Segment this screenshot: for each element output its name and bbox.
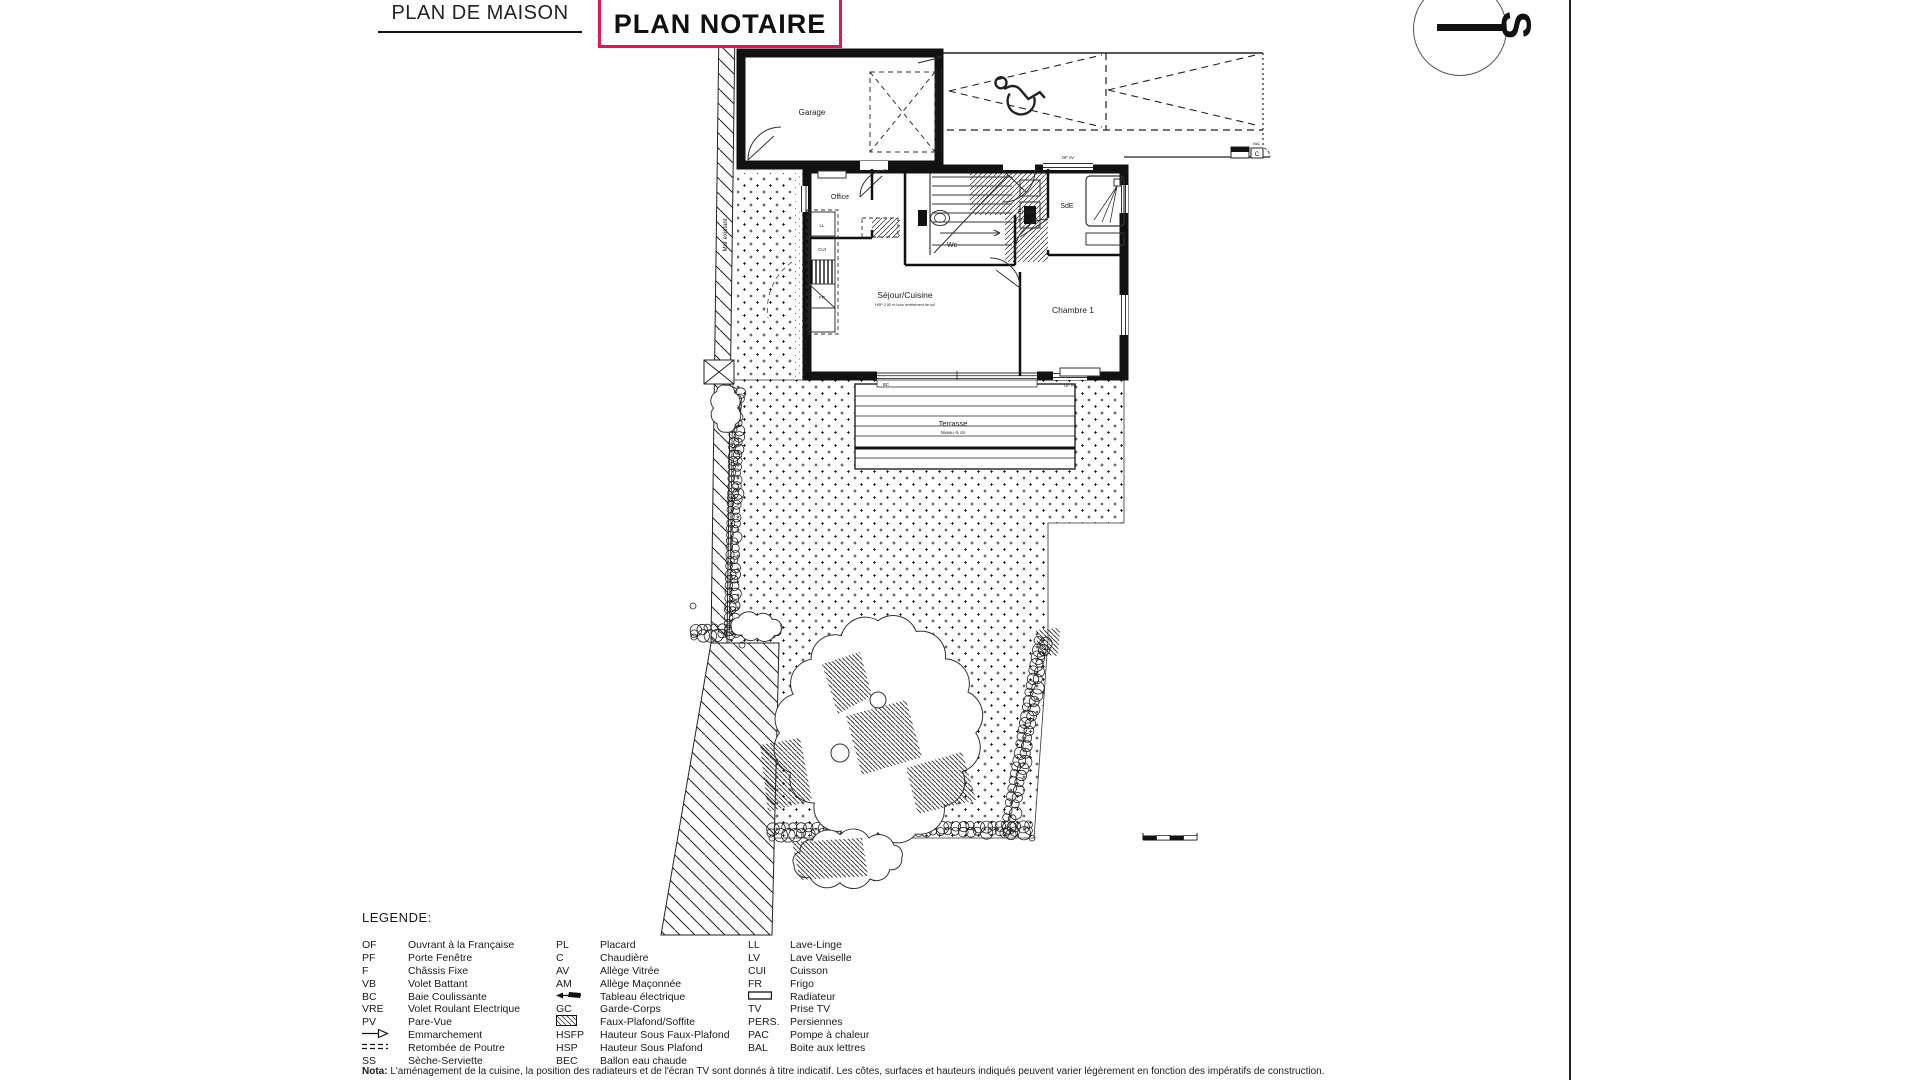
garage: Garage [741, 53, 942, 165]
legend-abbr: PERS. [748, 1016, 790, 1028]
legend-row: AVAllège Vitrée [556, 965, 730, 978]
legend-abbr: OF [362, 939, 408, 951]
legend-abbr: F [362, 965, 408, 977]
legend-abbr: BAL [748, 1042, 790, 1054]
legend-label: Placard [600, 939, 636, 951]
retombee-icon [362, 1042, 408, 1054]
legend-abbr: LL [748, 939, 790, 951]
legend-abbr: LV [748, 952, 790, 964]
scale-bar [1143, 833, 1197, 840]
legend-label: Chaudière [600, 952, 648, 964]
legend-label: Volet Battant [408, 978, 468, 990]
legend-row: LLLave-Linge [748, 939, 869, 952]
hedge-shrub [697, 630, 709, 642]
mailbox: C BAL [1251, 141, 1270, 158]
legend-label: Lave-Linge [790, 939, 842, 951]
mailbox-letter: C [1255, 151, 1260, 158]
legend-column-3: LLLave-LingeLVLave VaiselleCUICuissonFRF… [748, 939, 869, 1054]
note-text: L'aménagement de la cuisine, la position… [388, 1066, 1325, 1077]
legend-row: FChâssis Fixe [362, 965, 520, 978]
legend-label: Frigo [790, 978, 814, 990]
chambre-window-label: OF AV [1064, 383, 1076, 388]
legend-row: BALBoite aux lettres [748, 1041, 869, 1054]
legend-label: Boite aux lettres [790, 1042, 865, 1054]
legend-abbr: GC [556, 1003, 600, 1015]
legend-label: Persiennes [790, 1016, 843, 1028]
terrace: Terrasse Niveau -5 cm [855, 384, 1075, 469]
radiateur-icon [748, 991, 790, 1003]
legend-label: Allège Maçonnée [600, 978, 681, 990]
legend-row: Retombée de Poutre [362, 1041, 520, 1054]
legend-row: Tableau électrique [556, 990, 730, 1003]
plan-sheet: Mur existant Terrasse Niveau -5 cm [0, 0, 1920, 1080]
legend-abbr: TV [748, 1003, 790, 1015]
office-label: Office [831, 194, 849, 201]
wc-label: Wc [947, 242, 958, 249]
legend-label: Allège Vitrée [600, 965, 659, 977]
legend-row: AMAllège Maçonnée [556, 977, 730, 990]
legend-abbr: PV [362, 1016, 408, 1028]
legend: LEGENDE: OFOuvrant à la FrançaisePFPorte… [362, 910, 432, 939]
sde-label: SdE [1060, 203, 1074, 210]
entree-sub-label: HSFP 2.20 m [1016, 218, 1038, 222]
sejour-label: Séjour/Cuisine [877, 290, 933, 300]
legend-abbr: CUI [748, 965, 790, 977]
bottom-note: Nota: L'aménagement de la cuisine, la po… [362, 1066, 1552, 1077]
legend-column-1: OFOuvrant à la FrançaisePFPorte FenêtreF… [362, 939, 520, 1067]
legend-label: Ballon eau chaude [600, 1055, 687, 1067]
legend-label: Tableau électrique [600, 991, 685, 1003]
bay-door-label: BC [883, 382, 890, 387]
legend-label: Baie Coulissante [408, 991, 487, 1003]
legend-label: Porte Fenêtre [408, 952, 472, 964]
sheet-border-line [1569, 0, 1571, 1080]
legend-label: Volet Roulant Electrique [408, 1003, 520, 1015]
legend-abbr: SS [362, 1055, 408, 1067]
legend-row: VBVolet Battant [362, 977, 520, 990]
legend-label: Prise TV [790, 1003, 830, 1015]
legend-row: FRFrigo [748, 977, 869, 990]
legend-abbr: HSP [556, 1042, 600, 1054]
legend-abbr: BEC [556, 1055, 600, 1067]
legend-label: Châssis Fixe [408, 965, 468, 977]
existing-wall-label: Mur existant [723, 218, 729, 251]
notary-stamp-box: PLAN NOTAIRE [598, 0, 842, 48]
terrace-sub-label: Niveau -5 cm [941, 430, 966, 435]
legend-label: Emmarchement [408, 1029, 482, 1041]
legend-row: GCGarde-Corps [556, 1003, 730, 1016]
garage-label: Garage [799, 108, 826, 117]
legend-label: Lave Vaiselle [790, 952, 852, 964]
legend-abbr: PF [362, 952, 408, 964]
legend-column-2: PLPlacardCChaudièreAVAllège VitréeAMAllè… [556, 939, 730, 1067]
legend-abbr: PAC [748, 1029, 790, 1041]
legend-label: Garde-Corps [600, 1003, 661, 1015]
sejour-sub-label: HSP 2.50 m hors revêtement de sol [875, 303, 935, 307]
legend-abbr: C [556, 952, 600, 964]
legend-row: OFOuvrant à la Française [362, 939, 520, 952]
legend-label: Sèche-Serviette [408, 1055, 483, 1067]
legend-title: LEGENDE: [362, 910, 432, 925]
legend-row: Faux-Plafond/Soffite [556, 1016, 730, 1029]
emmarchement-icon [362, 1028, 408, 1042]
legend-row: PLPlacard [556, 939, 730, 952]
floor-plan-drawing: Mur existant Terrasse Niveau -5 cm [0, 0, 1920, 1080]
legend-row: PACPompe à chaleur [748, 1029, 869, 1042]
legend-row: PERS.Persiennes [748, 1016, 869, 1029]
parking-spots: C BAL [943, 53, 1270, 158]
kitchen-ll-label: LL [819, 223, 825, 228]
legend-row: CChaudière [556, 952, 730, 965]
compass-south-letter: S [1495, 11, 1537, 39]
legend-label: Radiateur [790, 991, 836, 1003]
kitchen-fr-label: FR [819, 295, 826, 300]
legend-abbr: VRE [362, 1003, 408, 1015]
legend-abbr: BC [362, 991, 408, 1003]
tableau-icon [556, 991, 600, 1003]
mailbox-label: BAL [1253, 141, 1261, 146]
legend-label: Pompe à chaleur [790, 1029, 869, 1041]
house: OF AV BC OF AV [799, 155, 1128, 388]
notary-stamp-label: PLAN NOTAIRE [614, 11, 827, 45]
legend-row: PFPorte Fenêtre [362, 952, 520, 965]
legend-label: Cuisson [790, 965, 828, 977]
legend-row: TVPrise TV [748, 1003, 869, 1016]
legend-row: CUICuisson [748, 965, 869, 978]
legend-label: Faux-Plafond/Soffite [600, 1016, 695, 1028]
legend-row: HSPHauteur Sous Plafond [556, 1041, 730, 1054]
north-window-label: OF AV [1062, 155, 1074, 160]
legend-row: BCBaie Coulissante [362, 990, 520, 1003]
legend-row: PVPare-Vue [362, 1016, 520, 1029]
legend-label: Hauteur Sous Plafond [600, 1042, 703, 1054]
legend-row: LVLave Vaiselle [748, 952, 869, 965]
legend-label: Retombée de Poutre [408, 1042, 505, 1054]
legend-label: Pare-Vue [408, 1016, 452, 1028]
legend-abbr: HSFP [556, 1029, 600, 1041]
fauxplafond-icon [556, 1015, 600, 1029]
chambre-label: Chambre 1 [1052, 305, 1094, 315]
legend-abbr: PL [556, 939, 600, 951]
page-title: PLAN DE MAISON [378, 2, 582, 33]
legend-row: Emmarchement [362, 1029, 520, 1042]
legend-row: Radiateur [748, 990, 869, 1003]
note-prefix: Nota: [362, 1066, 388, 1077]
legend-abbr: AV [556, 965, 600, 977]
legend-abbr: AM [556, 978, 600, 990]
utility-meter-box [1231, 147, 1249, 158]
terrace-label: Terrasse [939, 419, 968, 428]
legend-abbr: FR [748, 978, 790, 990]
entree-label: Entrée [1018, 209, 1037, 216]
legend-row: HSFPHauteur Sous Faux-Plafond [556, 1029, 730, 1042]
legend-abbr: VB [362, 978, 408, 990]
legend-row: VREVolet Roulant Electrique [362, 1003, 520, 1016]
kitchen-cui-label: CUI [818, 247, 826, 252]
legend-label: Hauteur Sous Faux-Plafond [600, 1029, 730, 1041]
legend-label: Ouvrant à la Française [408, 939, 514, 951]
